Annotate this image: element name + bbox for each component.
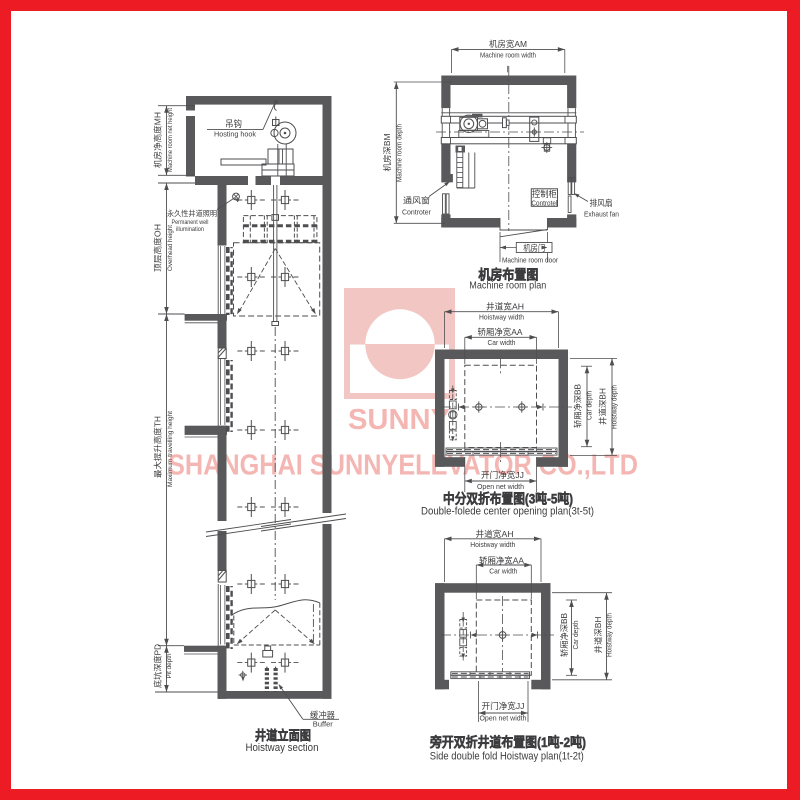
svg-text:永久性井道照明: 永久性井道照明 <box>167 208 217 218</box>
svg-text:illumination: illumination <box>176 226 204 233</box>
svg-text:Side double fold Hoistway plan: Side double fold Hoistway plan(1t-2t) <box>430 751 584 763</box>
svg-text:排风扇: 排风扇 <box>590 198 613 208</box>
svg-text:轿厢净深BB: 轿厢净深BB <box>573 384 583 428</box>
svg-text:Open net width: Open net width <box>480 713 527 722</box>
svg-text:Double-folede center opening p: Double-folede center opening plan(3t-5t) <box>421 506 594 518</box>
svg-text:开门净宽JJ: 开门净宽JJ <box>482 700 525 711</box>
svg-text:井道深BH: 井道深BH <box>598 388 608 425</box>
svg-text:Machine room width: Machine room width <box>480 51 536 60</box>
svg-text:Machine room net height: Machine room net height <box>167 108 174 172</box>
svg-text:Hoistway section: Hoistway section <box>246 742 319 754</box>
svg-text:Hoistway depth: Hoistway depth <box>612 385 619 429</box>
svg-text:控制柜: 控制柜 <box>532 188 557 199</box>
svg-text:Maximum travelling height: Maximum travelling height <box>167 411 174 487</box>
svg-text:井道宽AH: 井道宽AH <box>486 300 524 311</box>
svg-text:底坑深度PD: 底坑深度PD <box>153 644 163 688</box>
svg-text:Buffer: Buffer <box>313 719 334 728</box>
svg-text:机房宽AM: 机房宽AM <box>489 38 527 49</box>
svg-text:轿厢净宽AA: 轿厢净宽AA <box>478 326 523 337</box>
svg-text:Car width: Car width <box>489 567 517 576</box>
svg-text:通风窗: 通风窗 <box>403 196 430 206</box>
svg-text:吊钩: 吊钩 <box>225 118 242 129</box>
svg-text:机房门: 机房门 <box>523 243 545 253</box>
svg-text:Hoistway width: Hoistway width <box>470 540 515 549</box>
svg-text:Car depth: Car depth <box>587 391 594 420</box>
svg-text:轿厢净深BB: 轿厢净深BB <box>559 613 569 657</box>
svg-text:Car depth: Car depth <box>573 620 580 649</box>
svg-text:机房净高度MH: 机房净高度MH <box>153 112 163 168</box>
svg-text:Pit depth: Pit depth <box>166 653 173 678</box>
svg-text:Controtel: Controtel <box>531 201 557 208</box>
svg-text:Machine room door: Machine room door <box>502 255 559 264</box>
svg-text:Open net width: Open net width <box>477 482 524 491</box>
svg-text:机房深BM: 机房深BM <box>382 133 392 171</box>
svg-text:Permanent well: Permanent well <box>172 219 209 226</box>
svg-text:Hoistway depth: Hoistway depth <box>607 613 614 657</box>
svg-text:轿厢净宽AA: 轿厢净宽AA <box>479 555 524 566</box>
svg-text:中分双折布置图(3吨-5吨): 中分双折布置图(3吨-5吨) <box>443 491 573 507</box>
svg-text:开门净宽JJ: 开门净宽JJ <box>481 469 524 480</box>
svg-text:Car width: Car width <box>488 338 516 347</box>
svg-text:Exhaust fan: Exhaust fan <box>584 210 619 219</box>
svg-text:Hosting hook: Hosting hook <box>214 130 256 139</box>
svg-text:Machine room depth: Machine room depth <box>397 124 404 182</box>
svg-text:Overhead height: Overhead height <box>167 225 174 271</box>
svg-text:SUNNY: SUNNY <box>348 404 450 436</box>
svg-text:井道深BH: 井道深BH <box>593 616 603 653</box>
svg-text:井道立面图: 井道立面图 <box>255 728 311 743</box>
svg-text:顶层高度OH: 顶层高度OH <box>153 224 163 272</box>
svg-text:Machine room plan: Machine room plan <box>469 281 546 292</box>
svg-text:井道宽AH: 井道宽AH <box>476 528 514 539</box>
svg-text:Controter: Controter <box>402 208 432 217</box>
svg-text:最大提升高度TH: 最大提升高度TH <box>153 416 163 478</box>
svg-text:Hoistway width: Hoistway width <box>479 313 524 322</box>
svg-text:缓冲器: 缓冲器 <box>310 710 336 720</box>
svg-text:旁开双折井道布置图(1吨-2吨): 旁开双折井道布置图(1吨-2吨) <box>429 734 586 750</box>
